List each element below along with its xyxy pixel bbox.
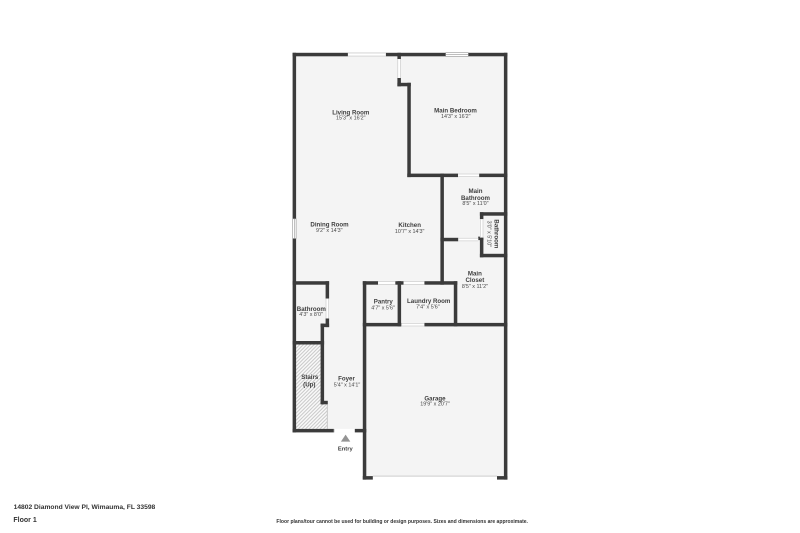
svg-text:9'2" x 14'3": 9'2" x 14'3" <box>316 228 343 234</box>
svg-text:8'5" x 11'2": 8'5" x 11'2" <box>462 284 488 290</box>
svg-text:Floor 1: Floor 1 <box>13 517 36 524</box>
svg-text:Bathroom: Bathroom <box>492 219 499 249</box>
svg-text:10'7" x 14'3": 10'7" x 14'3" <box>395 229 425 235</box>
svg-text:14802 Diamond View Pl, Wimauma: 14802 Diamond View Pl, Wimauma, FL 33598 <box>14 504 156 511</box>
svg-text:Entry: Entry <box>338 446 354 452</box>
svg-text:7'4" x 5'6": 7'4" x 5'6" <box>416 305 440 311</box>
svg-text:8'5" x 11'0": 8'5" x 11'0" <box>462 201 488 207</box>
svg-text:14'3" x 16'2": 14'3" x 16'2" <box>441 114 471 120</box>
svg-text:Closet: Closet <box>466 277 485 284</box>
svg-text:Stairs: Stairs <box>301 374 319 381</box>
svg-text:15'3" x 16'2": 15'3" x 16'2" <box>336 116 366 122</box>
svg-text:Kitchen: Kitchen <box>398 222 421 229</box>
svg-text:3'0" x 5'10": 3'0" x 5'10" <box>486 221 492 248</box>
svg-text:5'4" x 14'1": 5'4" x 14'1" <box>334 383 361 389</box>
svg-text:19'9" x 20'7": 19'9" x 20'7" <box>420 402 450 408</box>
svg-text:(Up): (Up) <box>303 382 315 389</box>
svg-text:4'7" x 5'6": 4'7" x 5'6" <box>371 305 395 311</box>
svg-text:4'3" x 8'0": 4'3" x 8'0" <box>299 312 323 318</box>
svg-text:Floor plans/tour cannot be use: Floor plans/tour cannot be used for buil… <box>276 519 528 525</box>
svg-text:Foyer: Foyer <box>338 375 355 382</box>
svg-text:Main: Main <box>469 188 483 195</box>
